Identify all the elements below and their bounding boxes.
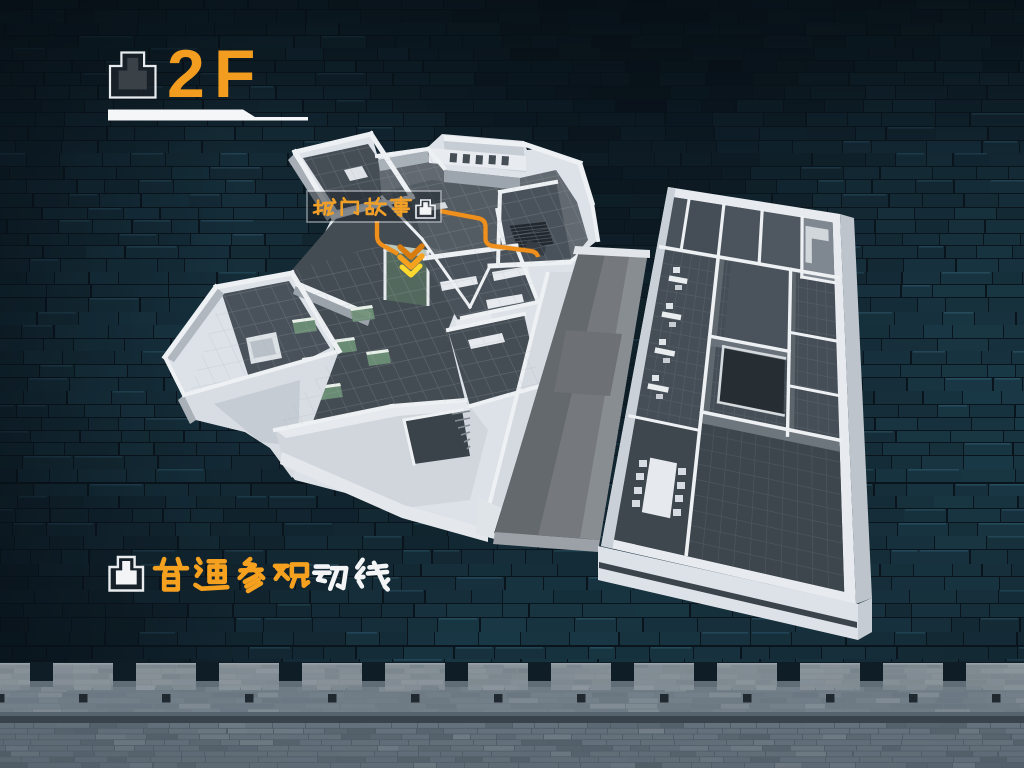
svg-text:2F: 2F: [167, 36, 264, 112]
